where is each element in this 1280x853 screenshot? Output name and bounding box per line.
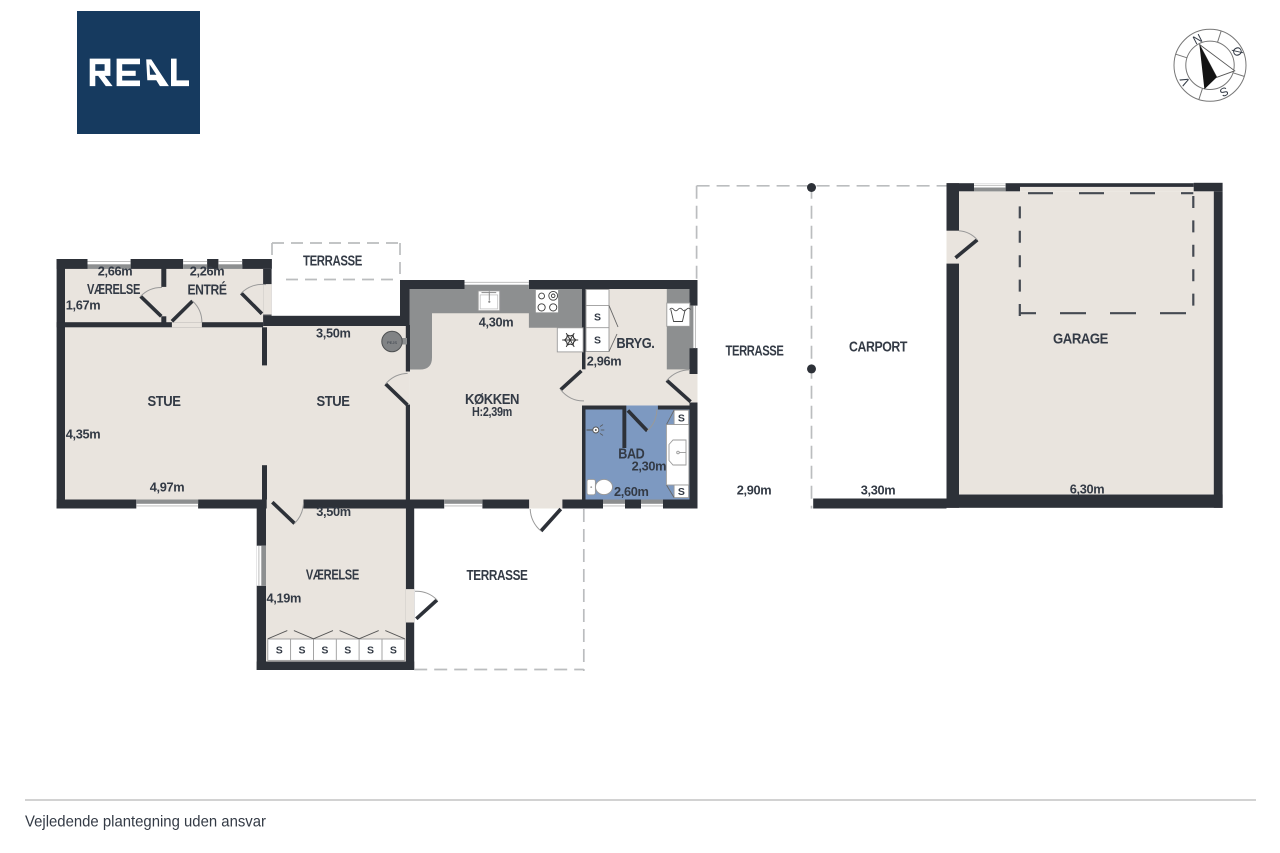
svg-text:6,30m: 6,30m (1070, 483, 1105, 497)
svg-text:4,97m: 4,97m (150, 481, 185, 495)
svg-text:S: S (594, 312, 601, 324)
svg-text:S: S (276, 645, 283, 657)
svg-text:S: S (321, 645, 328, 657)
svg-text:S: S (390, 645, 397, 657)
svg-text:S: S (594, 335, 601, 347)
svg-text:TERRASSE: TERRASSE (726, 343, 784, 360)
svg-text:H:2,39m: H:2,39m (472, 405, 512, 419)
svg-text:S: S (367, 645, 374, 657)
svg-text:3,50m: 3,50m (316, 327, 351, 341)
svg-text:VÆRELSE: VÆRELSE (87, 281, 140, 298)
svg-text:Vejledende plantegning uden an: Vejledende plantegning uden ansvar (25, 814, 267, 831)
svg-text:TERRASSE: TERRASSE (303, 253, 362, 270)
svg-text:1,67m: 1,67m (66, 299, 101, 313)
svg-text:3,50m: 3,50m (316, 505, 351, 519)
svg-text:CARPORT: CARPORT (849, 339, 907, 356)
svg-text:STUE: STUE (148, 393, 181, 410)
svg-text:2,90m: 2,90m (737, 484, 772, 498)
svg-text:S: S (344, 645, 351, 657)
svg-text:STUE: STUE (317, 393, 350, 410)
svg-text:S: S (678, 486, 685, 498)
svg-text:2,60m: 2,60m (614, 485, 649, 499)
svg-text:4,30m: 4,30m (479, 316, 514, 330)
svg-text:BRYG.: BRYG. (616, 335, 654, 352)
svg-text:3,30m: 3,30m (861, 484, 896, 498)
svg-text:ENTRÉ: ENTRÉ (188, 282, 227, 299)
svg-text:PEJS: PEJS (387, 340, 397, 345)
svg-text:S: S (298, 645, 305, 657)
svg-text:4,35m: 4,35m (66, 428, 101, 442)
svg-text:GARAGE: GARAGE (1053, 331, 1108, 348)
svg-text:4,19m: 4,19m (267, 592, 302, 606)
svg-text:TERRASSE: TERRASSE (467, 567, 528, 584)
svg-text:2,30m: 2,30m (632, 460, 667, 474)
svg-text:2,96m: 2,96m (587, 355, 622, 369)
svg-text:S: S (678, 413, 685, 425)
svg-text:2,26m: 2,26m (190, 265, 225, 279)
svg-text:VÆRELSE: VÆRELSE (306, 567, 359, 584)
svg-text:2,66m: 2,66m (98, 265, 133, 279)
